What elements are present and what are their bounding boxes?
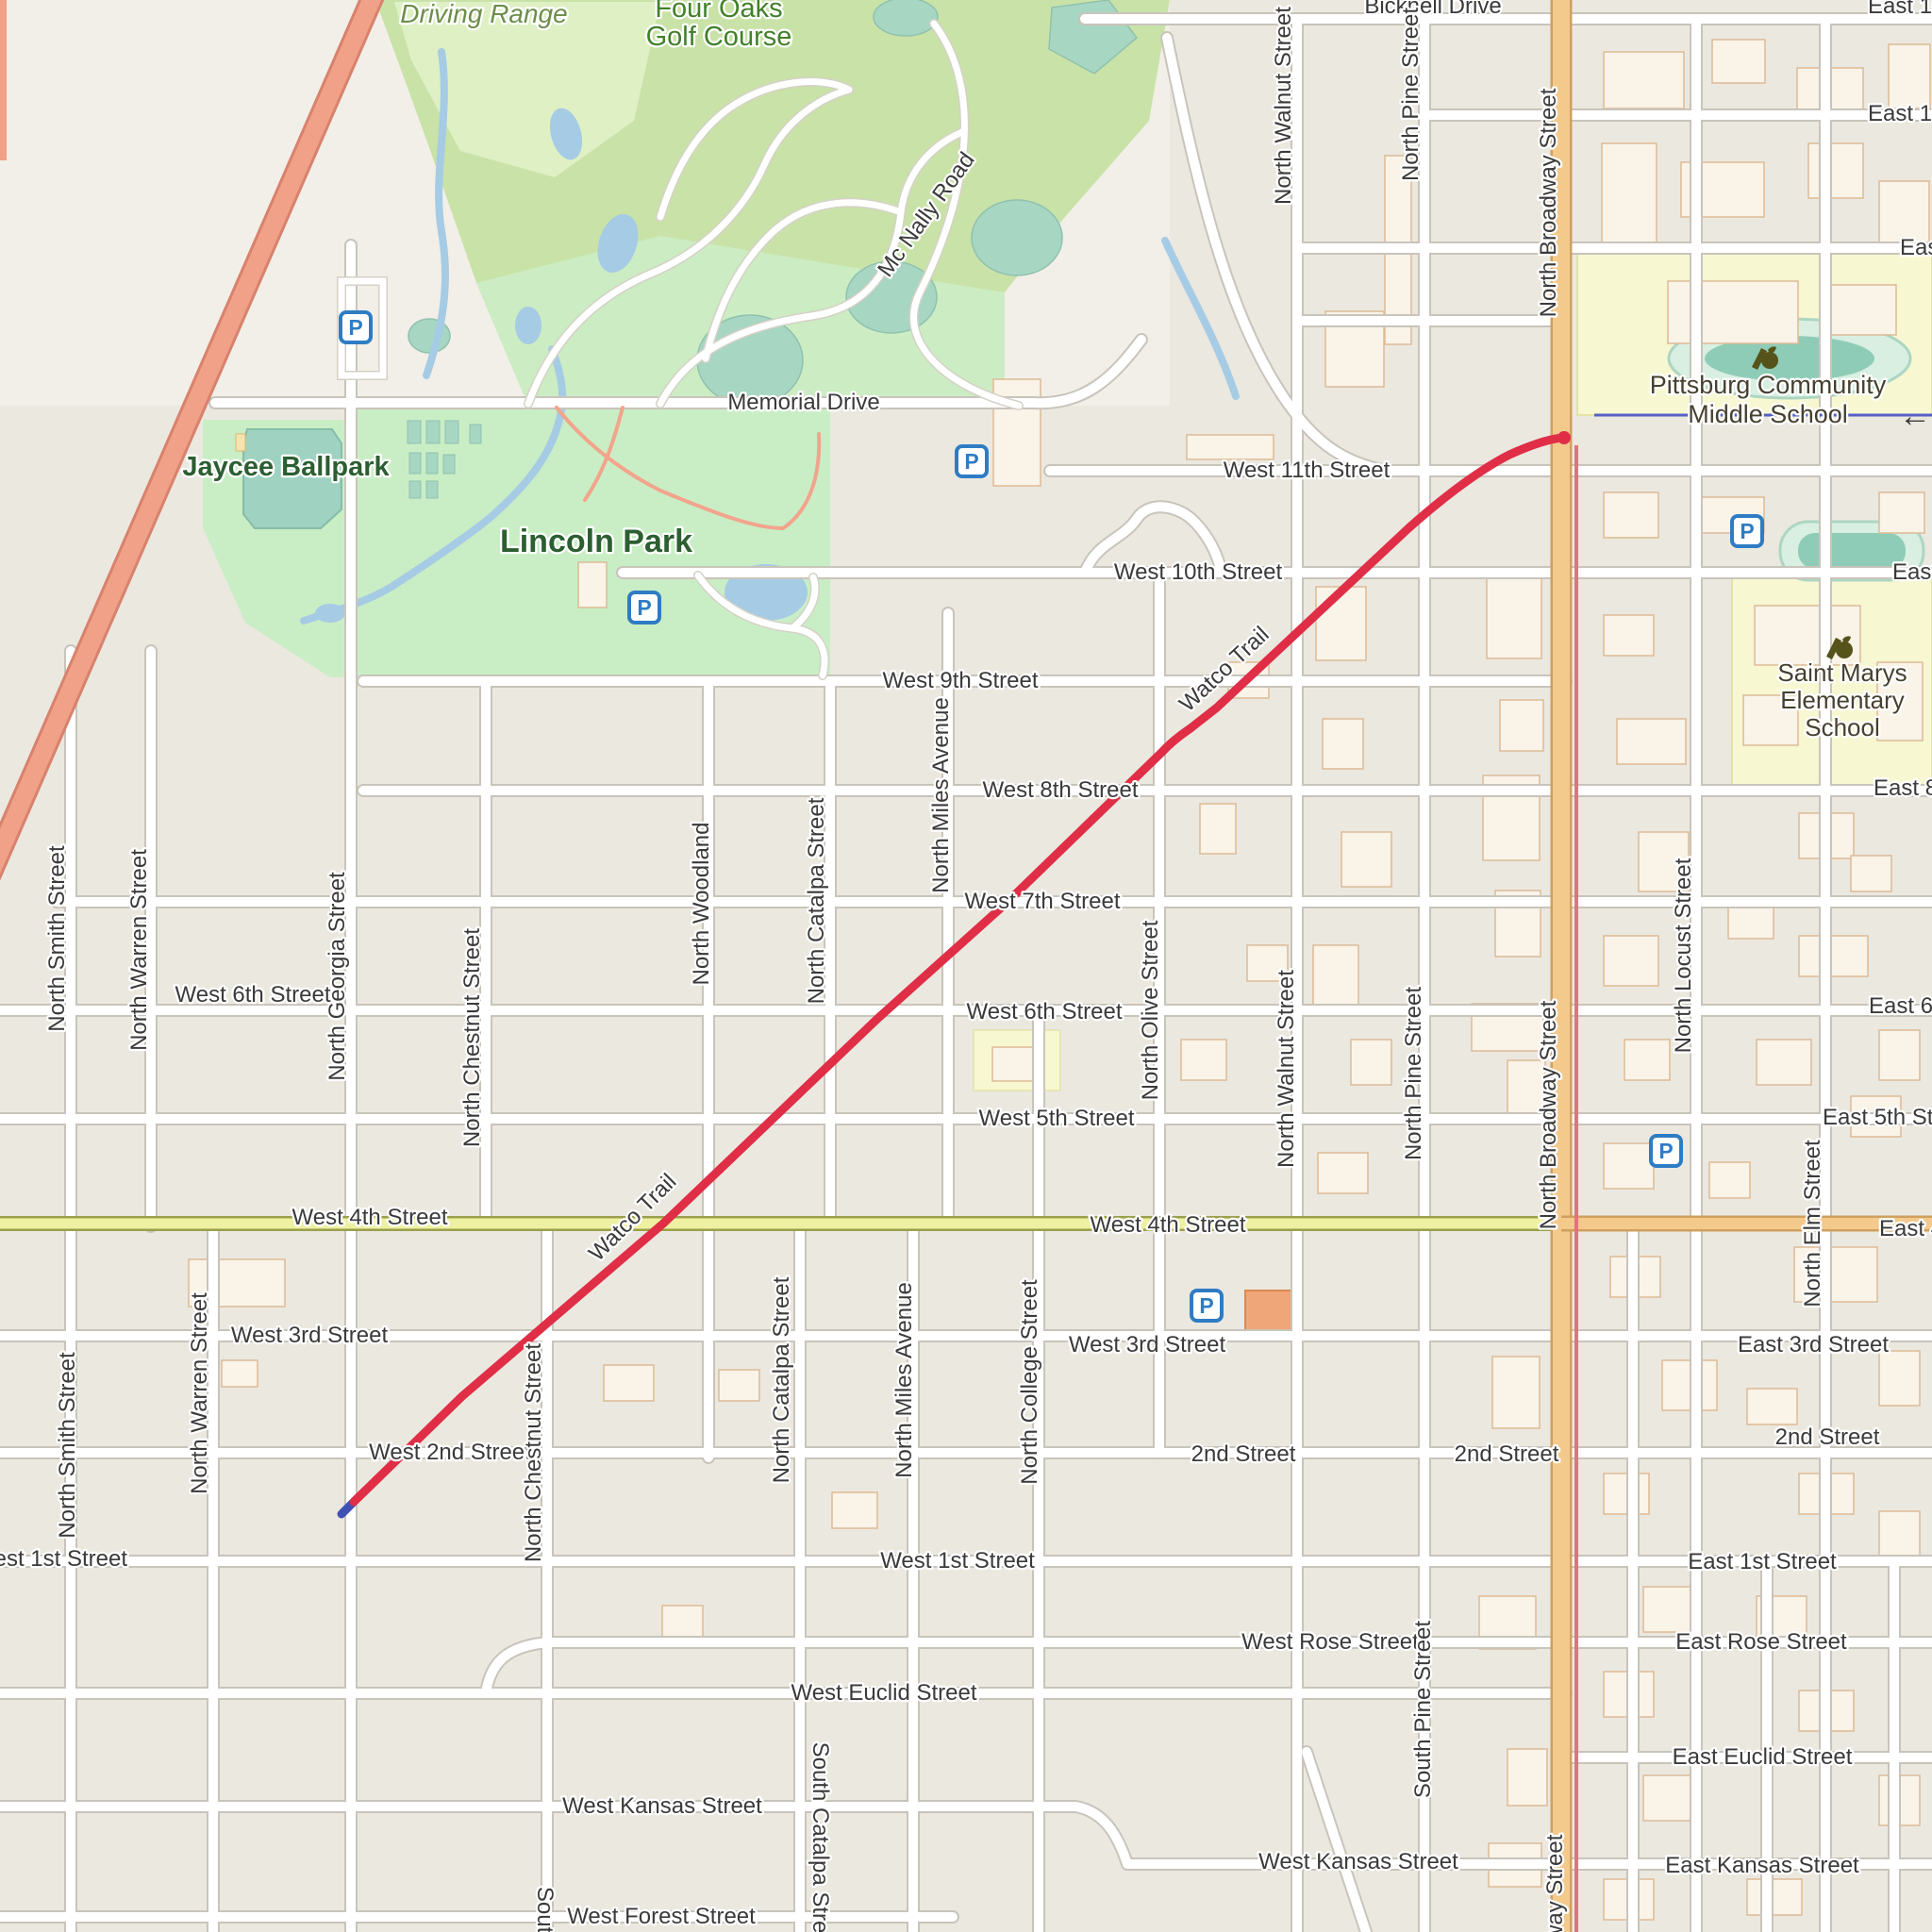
building-footprint xyxy=(1879,1030,1920,1080)
parking-icon: P xyxy=(1651,1136,1681,1166)
street-label-2nd-c: 2nd Street xyxy=(1775,1424,1880,1450)
street-label-north-college: North College Street xyxy=(1017,1279,1042,1485)
building-footprint xyxy=(1823,285,1896,335)
street-label-west-4th-left: West 4th Street xyxy=(292,1205,448,1230)
street-label-2nd-b: 2nd Street xyxy=(1455,1441,1559,1467)
building-footprint xyxy=(1889,44,1930,108)
street-label-east-rose: East Rose Street xyxy=(1675,1629,1847,1655)
street-label-west-1st-left: West 1st Street xyxy=(0,1546,127,1572)
poi-label-saint-marys-1: Saint Marys xyxy=(1777,658,1907,687)
street-label-north-smith-a: North Smith Street xyxy=(44,845,70,1032)
building-footprint xyxy=(1757,1040,1811,1085)
building-footprint xyxy=(662,1606,703,1637)
street-label-east-14th: East 14th Street xyxy=(1900,235,1932,260)
building-footprint xyxy=(1507,1749,1547,1806)
poi-label-jaycee-ballpark: Jaycee Ballpark xyxy=(182,452,390,482)
building-footprint xyxy=(604,1365,654,1401)
street-label-south-chestnut: South Chestnut Street xyxy=(532,1887,558,1932)
street-label-2nd-a: 2nd Street xyxy=(1191,1441,1296,1467)
parking-icon: P xyxy=(1732,516,1762,546)
street-label-east-15th: East 15th Street xyxy=(1868,101,1932,126)
street-label-east-4th: East 4th Street xyxy=(1879,1216,1932,1241)
street-label-south-broadway: South Broadway Street xyxy=(1542,1834,1568,1932)
street-label-north-warren-a: North Warren Street xyxy=(126,849,152,1051)
street-label-north-warren-b: North Warren Street xyxy=(187,1292,212,1494)
street-label-north-smith-b: North Smith Street xyxy=(55,1352,80,1539)
poi-label-middle-school-1: Pittsburg Community xyxy=(1650,371,1887,399)
street-label-west-5th: West 5th Street xyxy=(979,1106,1135,1131)
building-footprint xyxy=(1187,435,1274,459)
building-footprint xyxy=(1808,143,1863,198)
street-label-north-pine-b: North Pine Street xyxy=(1401,987,1426,1160)
building-footprint xyxy=(1747,1879,1802,1915)
svg-text:P: P xyxy=(637,595,651,620)
building-footprint xyxy=(1799,936,1868,976)
svg-text:P: P xyxy=(348,315,362,340)
street-label-north-catalpa-a: North Catalpa Street xyxy=(804,797,829,1004)
svg-text:P: P xyxy=(1740,519,1754,543)
street-label-south-catalpa: South Catalpa Street xyxy=(808,1742,833,1932)
street-label-west-rose: West Rose Street xyxy=(1241,1629,1419,1655)
building-footprint xyxy=(1604,615,1654,656)
street-label-bicknell-drive: Bicknell Drive xyxy=(1364,0,1501,19)
street-label-west-3rd-left: West 3rd Street xyxy=(231,1323,389,1348)
building-footprint xyxy=(1643,1775,1693,1821)
street-label-west-euclid: West Euclid Street xyxy=(791,1680,977,1706)
street-label-north-broadway-a: North Broadway Street xyxy=(1536,88,1561,317)
one-way-arrow-icon: ← xyxy=(1899,398,1931,434)
poi-label-lincoln-park: Lincoln Park xyxy=(500,524,692,559)
building-footprint xyxy=(992,1047,1036,1081)
building-footprint xyxy=(1602,143,1657,243)
building-footprint xyxy=(993,379,1041,486)
building-footprint xyxy=(1200,804,1236,854)
svg-text:P: P xyxy=(1658,1139,1673,1163)
parking-icon: P xyxy=(341,312,371,342)
street-label-west-kansas-a: West Kansas Street xyxy=(562,1793,762,1819)
street-label-north-miles-b: North Miles Avenue xyxy=(891,1282,917,1478)
building-footprint xyxy=(1318,1153,1368,1193)
building-footprint xyxy=(1709,1162,1750,1198)
street-label-west-9th: West 9th Street xyxy=(883,668,1039,693)
street-label-north-catalpa-b: North Catalpa Street xyxy=(769,1276,794,1483)
street-label-north-locust: North Locust Street xyxy=(1671,858,1696,1053)
street-label-north-broadway-b: North Broadway Street xyxy=(1536,1000,1561,1229)
building-footprint xyxy=(832,1492,877,1528)
street-label-memorial-drive: Memorial Drive xyxy=(727,390,879,415)
street-label-east-8th: East 8th Street xyxy=(1874,775,1932,801)
building-footprint xyxy=(1323,719,1363,769)
street-label-west-6th: West 6th Street xyxy=(967,999,1123,1024)
parking-icon: P xyxy=(1191,1291,1222,1321)
poi-label-golf-course: Golf Course xyxy=(646,22,792,52)
watco-trail-endpoint xyxy=(1557,431,1571,444)
building-footprint xyxy=(1351,1040,1391,1085)
street-label-west-11th: West 11th Street xyxy=(1224,458,1391,483)
parking-icon: P xyxy=(629,592,659,623)
street-label-south-pine: South Pine Street xyxy=(1410,1621,1436,1798)
street-label-west-6th-left: West 6th Street xyxy=(175,982,331,1008)
poi-label-saint-marys-2: Elementary xyxy=(1780,686,1905,714)
street-label-north-walnut-a: North Walnut Street xyxy=(1271,7,1296,205)
building-footprint xyxy=(1313,945,1358,1009)
street-label-west-kansas-b: West Kansas Street xyxy=(1258,1849,1458,1874)
building-footprint xyxy=(578,562,607,608)
building-footprint xyxy=(1851,856,1891,891)
street-label-west-7th: West 7th Street xyxy=(965,889,1121,914)
parking-icon: P xyxy=(957,446,987,476)
street-label-east-5th: East 5th Street xyxy=(1823,1105,1932,1130)
svg-text:P: P xyxy=(1199,1293,1213,1318)
street-label-north-chestnut-b: North Chestnut Street xyxy=(521,1343,546,1562)
building-footprint xyxy=(1668,281,1798,343)
street-label-west-4th: West 4th Street xyxy=(1091,1212,1246,1238)
city-map-canvas[interactable]: Bicknell DriveEast 16th StreetEast 15th … xyxy=(0,0,1932,1932)
building-footprint xyxy=(222,1360,258,1387)
street-label-west-3rd: West 3rd Street xyxy=(1069,1332,1226,1357)
street-label-west-10th: West 10th Street xyxy=(1114,559,1283,585)
building-footprint xyxy=(1487,577,1541,658)
map-stage: Bicknell DriveEast 16th StreetEast 15th … xyxy=(0,0,1932,1932)
street-label-east-1st: East 1st Street xyxy=(1688,1549,1837,1574)
building-footprint xyxy=(1879,1511,1920,1557)
building-footprint xyxy=(1604,492,1658,538)
building-footprint xyxy=(1316,587,1366,660)
street-label-north-elm: North Elm Street xyxy=(1800,1140,1825,1307)
street-label-east-6th: East 6th Street xyxy=(1869,993,1932,1019)
street-label-north-pine-a: North Pine Street xyxy=(1398,8,1424,181)
building-footprint xyxy=(1624,1040,1670,1080)
building-footprint xyxy=(1492,1357,1540,1428)
building-footprint xyxy=(1341,832,1391,887)
building-footprint xyxy=(1617,719,1686,764)
building-footprint xyxy=(1604,52,1684,108)
street-label-north-olive: North Olive Street xyxy=(1138,920,1163,1100)
building-footprint xyxy=(1879,492,1924,533)
poi-label-four-oaks: Four Oaks xyxy=(655,0,782,24)
building-footprint xyxy=(1500,700,1543,751)
building-footprint xyxy=(1747,1389,1797,1424)
street-label-east-10th: East 10th Street xyxy=(1892,559,1932,585)
building-footprint xyxy=(1879,1351,1920,1406)
building-footprint xyxy=(1604,1143,1654,1189)
street-label-north-georgia: North Georgia Street xyxy=(325,872,350,1081)
street-label-north-miles-a: North Miles Avenue xyxy=(928,697,954,893)
building-footprint xyxy=(1604,936,1658,986)
street-label-east-3rd: East 3rd Street xyxy=(1738,1332,1889,1357)
street-label-north-walnut-b: North Walnut Street xyxy=(1274,970,1299,1168)
street-label-east-kansas: East Kansas Street xyxy=(1665,1853,1859,1878)
street-label-north-chestnut-a: North Chestnut Street xyxy=(459,928,485,1147)
building-footprint xyxy=(1712,40,1765,83)
building-footprint xyxy=(719,1370,759,1401)
poi-label-driving-range: Driving Range xyxy=(400,0,567,28)
poi-label-saint-marys-3: School xyxy=(1805,713,1880,741)
svg-text:P: P xyxy=(964,449,978,474)
building-footprint xyxy=(1181,1040,1226,1080)
street-label-east-16th: East 16th Street xyxy=(1868,0,1932,19)
highlighted-building xyxy=(1245,1291,1294,1335)
street-label-north-woodland: North Woodland xyxy=(689,823,714,986)
bleachers xyxy=(236,434,245,451)
street-label-west-8th: West 8th Street xyxy=(983,777,1139,803)
street-label-west-forest: West Forest Street xyxy=(567,1904,756,1929)
street-label-west-1st: West 1st Street xyxy=(880,1548,1035,1574)
poi-label-middle-school-2: Middle School xyxy=(1688,400,1848,428)
street-label-east-euclid: East Euclid Street xyxy=(1673,1744,1853,1770)
street-label-west-2nd: West 2nd Street xyxy=(369,1440,531,1465)
